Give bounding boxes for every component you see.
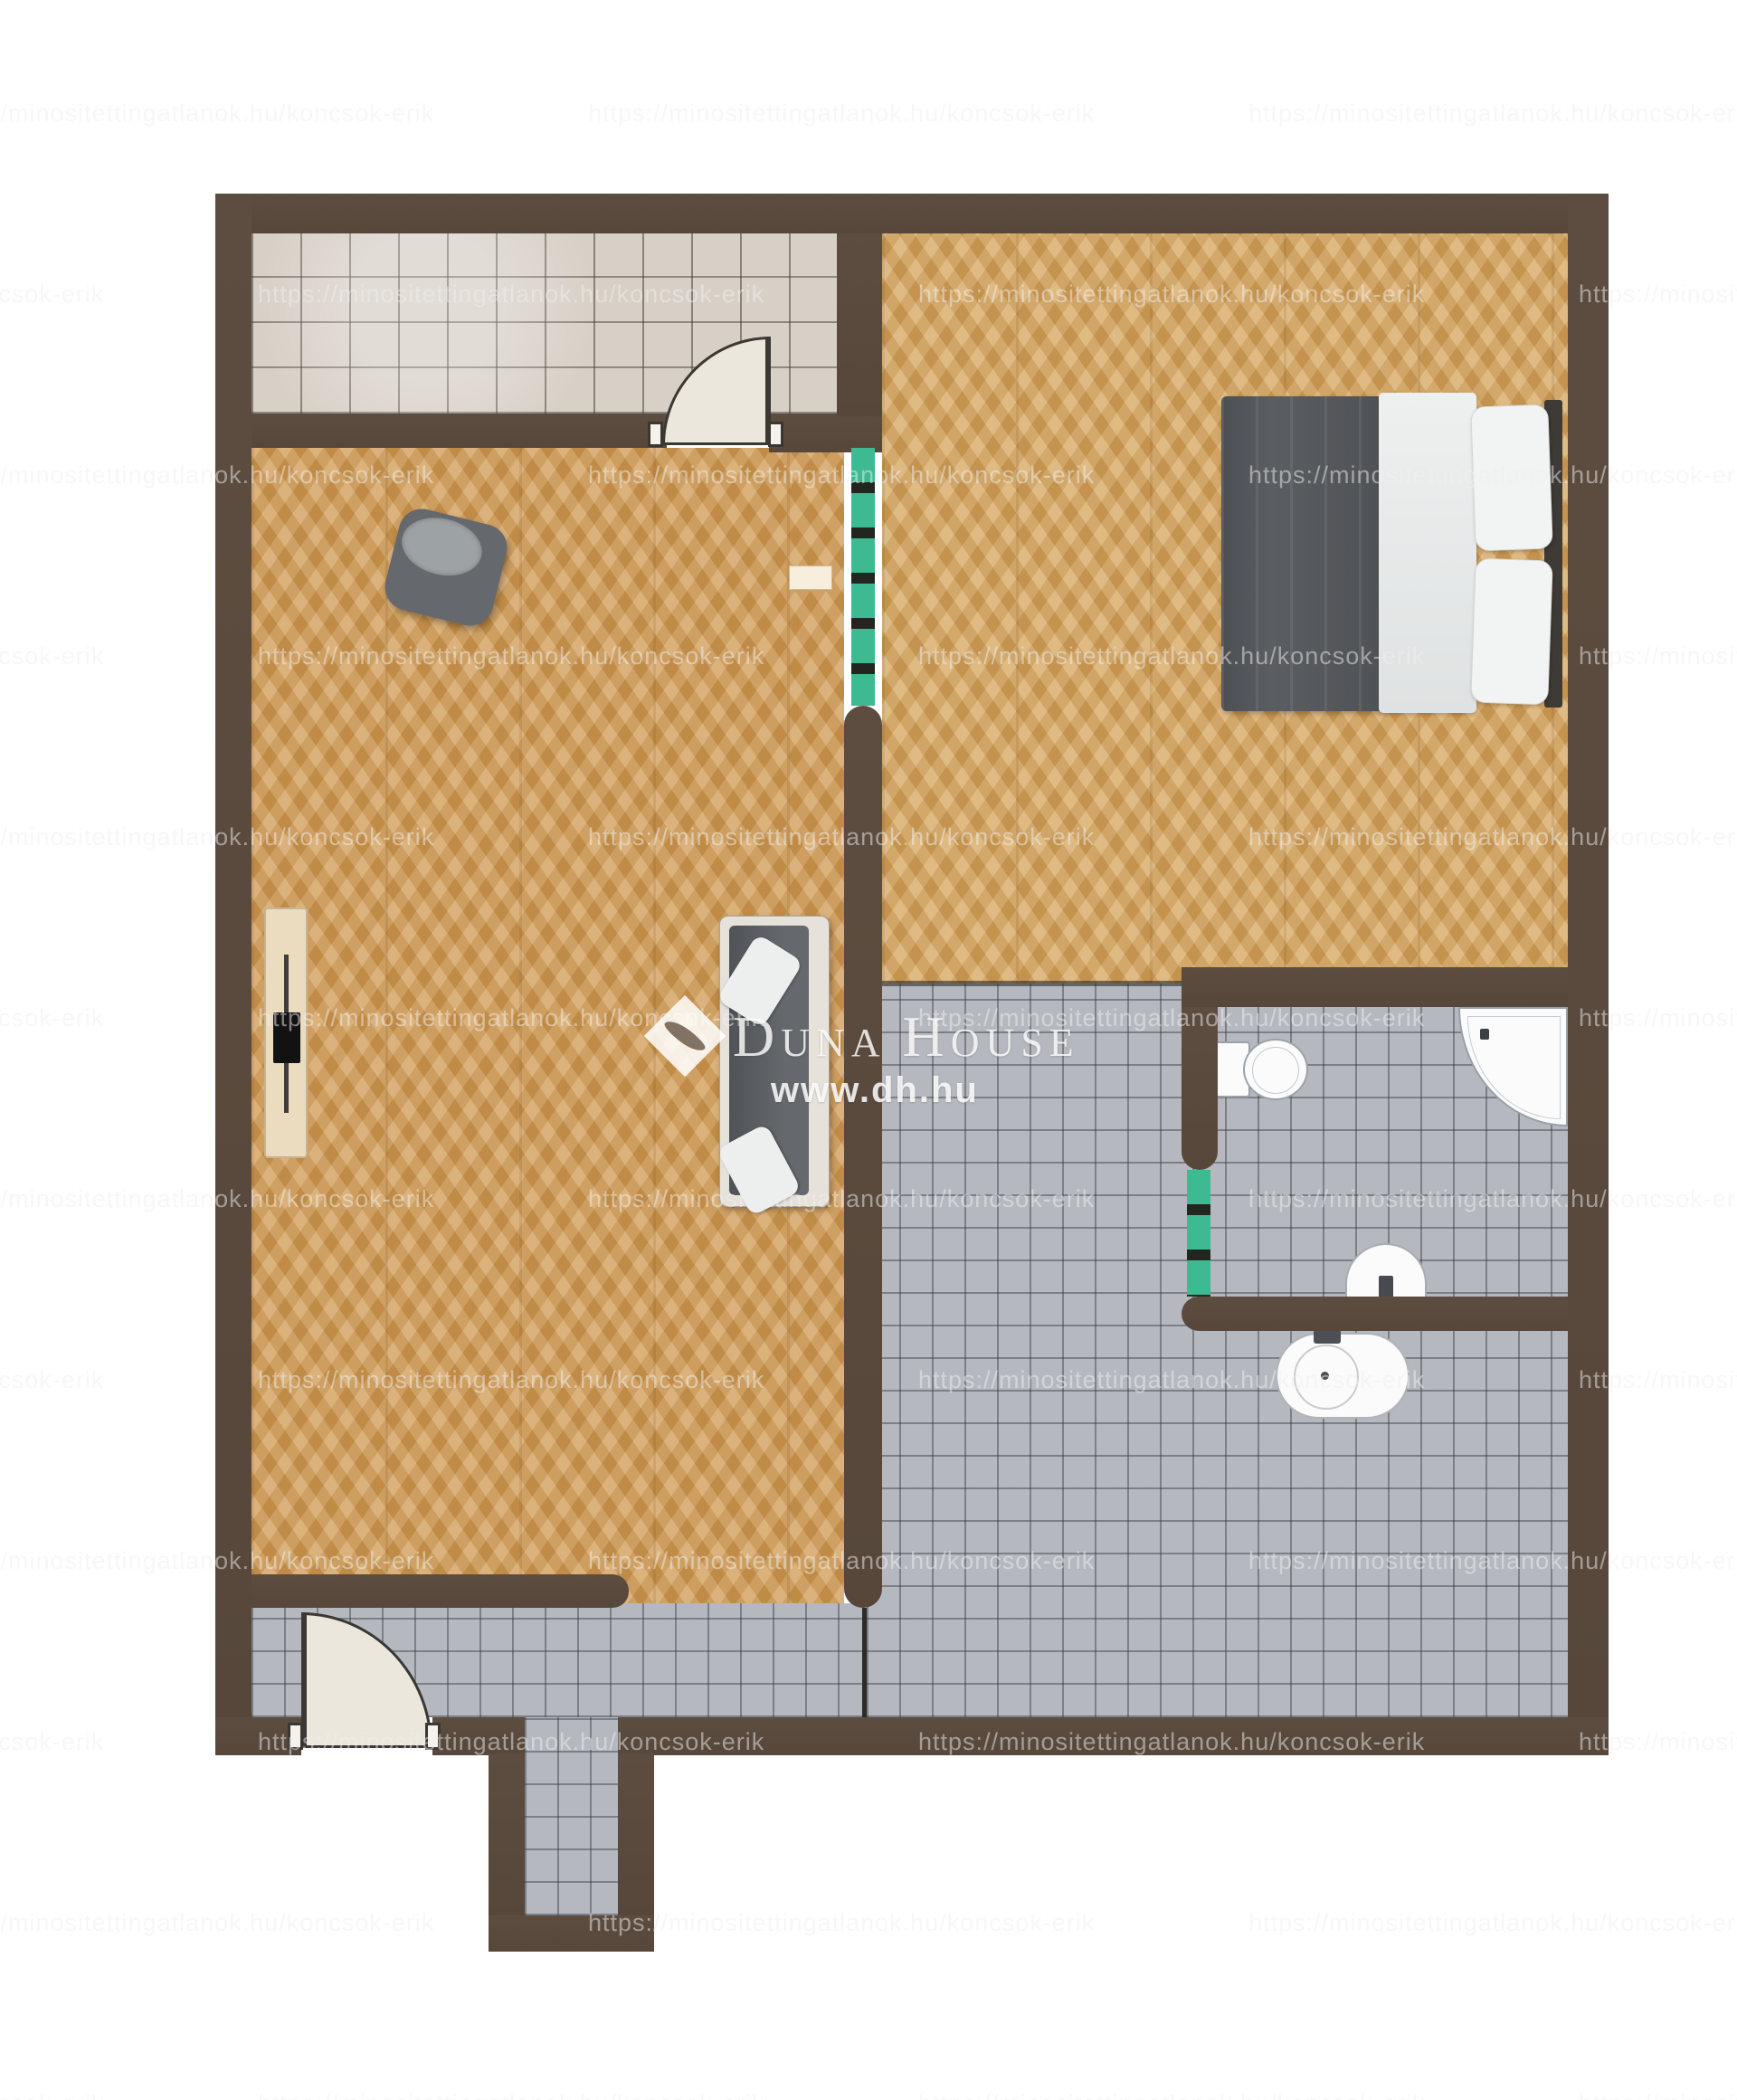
watermark-text: https://minositettingatlanok.hu/koncsok-… [588,100,1095,128]
bed [1221,391,1568,717]
radiator [789,565,832,590]
watermark-text: https://minositettingatlanok.hu/koncsok-… [0,642,104,670]
door-frame-bracket [768,422,783,447]
wall-outer-bottom-right [618,1717,1609,1755]
watermark-text: https://minositettingatlanok.hu/koncsok-… [918,2090,1425,2100]
shower-drain [1480,1029,1489,1040]
wall-hallway-right [837,233,882,416]
watermark-text: https://minositettingatlanok.hu/koncsok-… [0,1728,104,1756]
watermark-text: https://minositettingatlanok.hu/koncsok-… [0,2090,104,2100]
watermark-text: https://minositettingatlanok.hu/koncsok-… [0,1004,104,1032]
wall-wc-left [1182,1007,1218,1170]
handbasin-faucet [1379,1276,1393,1297]
watermark-text: https://minositettingatlanok.hu/koncsok-… [1579,2090,1737,2100]
watermark-text: https://minositettingatlanok.hu/koncsok-… [588,1909,1095,1937]
opening-dashed-bathroom [1187,1170,1210,1297]
wall-bathroom-mid [1182,1297,1568,1331]
tv-console [264,907,308,1158]
bed-pillow [1470,558,1553,706]
watermark-text: https://minositettingatlanok.hu/koncsok-… [0,280,104,309]
wall-outer-left [215,194,252,1755]
watermark-text: https://minositettingatlanok.hu/koncsok-… [258,2090,764,2100]
watermark-text: https://minositettingatlanok.hu/koncsok-… [1248,100,1737,128]
vestibule-floor [525,1717,618,1915]
bed-duvet [1379,393,1476,713]
watermark-text: https://minositettingatlanok.hu/koncsok-… [1248,1909,1737,1937]
bed-pillow [1470,404,1553,552]
watermark-text: https://minositettingatlanok.hu/koncsok-… [0,1909,434,1937]
wall-outer-right [1568,194,1609,1755]
wall-outer-top [215,194,1609,233]
wall-vestibule-left [489,1753,525,1918]
armchair-seat [395,509,488,584]
wall-wc-top [1182,967,1568,1007]
watermark-text: https://minositettingatlanok.hu/koncsok-… [0,1366,104,1394]
wall-hallway-bottom-right [769,413,882,452]
wall-living-bottom [252,1574,629,1608]
corridor-bathroom-divider-line [862,1608,867,1717]
opening-dashed-living-bedroom [851,448,875,706]
washbasin-oval [1276,1333,1410,1419]
tv-screen [273,1012,300,1063]
wall-vestibule-bottom [489,1915,654,1952]
door-frame-bracket [648,422,663,447]
washbasin-drain [1321,1372,1329,1380]
door-frame-bracket [425,1723,441,1750]
wall-vestibule-right [618,1753,654,1918]
door-frame-bracket [288,1723,303,1750]
wall-outer-bottom-mid [432,1717,525,1755]
washbasin-faucet [1314,1329,1341,1344]
toilet-seat-line [1252,1047,1299,1094]
bedroom-bathroom-threshold [882,981,1182,986]
wall-hallway-bottom-left [252,413,667,448]
toilet-bowl [1243,1039,1308,1100]
watermark-text: https://minositettingatlanok.hu/koncsok-… [0,100,434,128]
floor-plan: https://minositettingatlanok.hu/koncsok-… [0,0,1737,2100]
wall-divider [844,706,882,1608]
bed-blanket [1221,396,1386,711]
sofa [719,916,830,1207]
